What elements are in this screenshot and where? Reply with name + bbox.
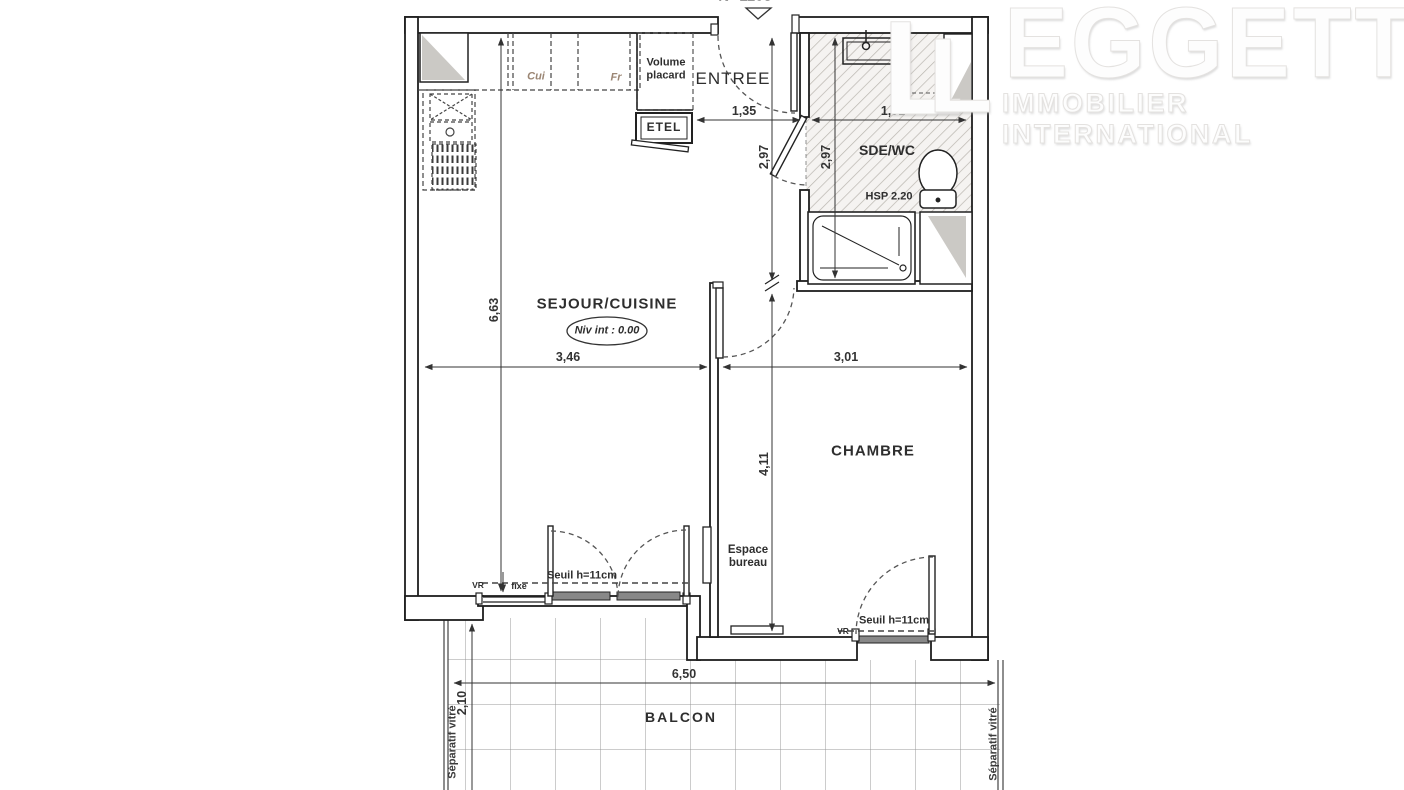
- wall-bottom-left: [405, 596, 483, 620]
- entrance-door-leaf: [791, 33, 797, 111]
- sde-duct-by-shower: [920, 212, 972, 284]
- dim-entree-depth: 2,97: [757, 145, 771, 169]
- desk-vertical: [703, 527, 711, 583]
- label-vr-chambre: VR: [837, 627, 849, 637]
- desk-horizontal: [731, 626, 783, 634]
- label-seuil-chambre: Seuil h=11cm: [859, 615, 929, 628]
- wall-left: [405, 17, 418, 620]
- kitchen-appliance-grid: [432, 144, 476, 190]
- kitchen-sink-unit: [430, 94, 472, 142]
- dim-chambre-width: 3,01: [834, 350, 858, 364]
- shower: [808, 212, 915, 284]
- dim-sejour-width: 3,46: [556, 350, 580, 364]
- french-door-right-leaf: [684, 526, 689, 596]
- label-seuil-sejour: Seuil h=11cm: [547, 570, 617, 583]
- entrance-marker-triangle: [746, 8, 771, 19]
- label-volume-placard: Volume placard: [640, 56, 692, 81]
- room-label-chambre: CHAMBRE: [831, 442, 915, 459]
- label-separatif-right: Séparatif vitré: [988, 707, 1001, 780]
- wall-sde-west-top: [800, 33, 809, 117]
- label-espace-bureau: Espace bureau: [724, 544, 772, 570]
- logo-subtitle: IMMOBILIER INTERNATIONAL: [1002, 88, 1404, 150]
- label-separatif-left: Séparatif vitré: [447, 705, 460, 778]
- label-niveau: Niv int : 0.00: [575, 325, 640, 338]
- wall-top-left: [405, 17, 718, 33]
- wall-chambre-bottom-left: [697, 637, 857, 660]
- dim-balcon-width: 6,50: [672, 667, 696, 681]
- chambre-balcony-door-leaf: [929, 556, 935, 634]
- shaft-top-left: [420, 33, 468, 82]
- dim-sejour-depth: 6,63: [487, 298, 501, 322]
- plan-number: N° 1103: [718, 0, 772, 5]
- label-fr: Fr: [611, 72, 622, 85]
- room-label-entree: ENTREE: [696, 69, 771, 89]
- label-vr-sejour: VR: [472, 581, 484, 591]
- dim-sde-depth: 2,97: [819, 145, 833, 169]
- french-door-left-leaf: [548, 526, 553, 596]
- sde-door-leaf: [770, 116, 806, 177]
- room-label-balcon: BALCON: [645, 709, 717, 725]
- wall-chambre-bottom-right: [931, 637, 988, 660]
- label-cui: Cui: [527, 71, 545, 84]
- dim-chambre-depth: 4,11: [757, 452, 771, 476]
- chambre-door-leaf: [716, 288, 723, 358]
- label-fixe: fixe: [511, 581, 527, 591]
- dim-entree-width: 1,35: [732, 104, 756, 118]
- room-label-sejour: SEJOUR/CUISINE: [537, 295, 678, 312]
- leggett-logo: L L EGGETT IMMOBILIER INTERNATIONAL: [878, 0, 1404, 140]
- label-hsp: HSP 2.20: [866, 191, 913, 204]
- logo-monogram-l2: L: [928, 16, 993, 137]
- logo-wordmark: EGGETT: [1004, 0, 1404, 101]
- label-etel: ETEL: [647, 121, 682, 135]
- toilet: [919, 150, 957, 208]
- floor-plan: N° 1103 ENTREE Volume placard ETEL Cui F…: [0, 0, 1404, 790]
